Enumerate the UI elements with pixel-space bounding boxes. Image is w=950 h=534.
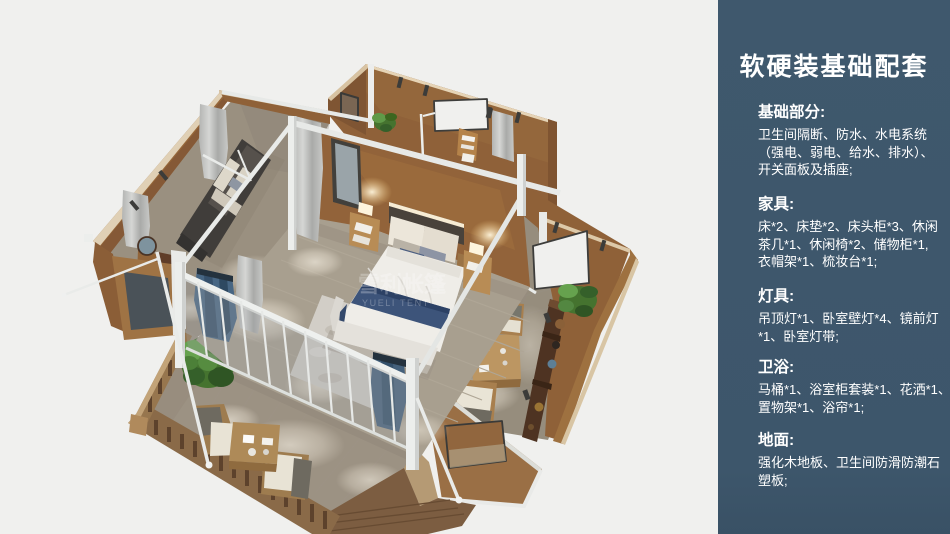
svg-text:YUELI TENT: YUELI TENT (362, 298, 430, 308)
svg-text:雪利帐篷: 雪利帐篷 (358, 272, 446, 297)
